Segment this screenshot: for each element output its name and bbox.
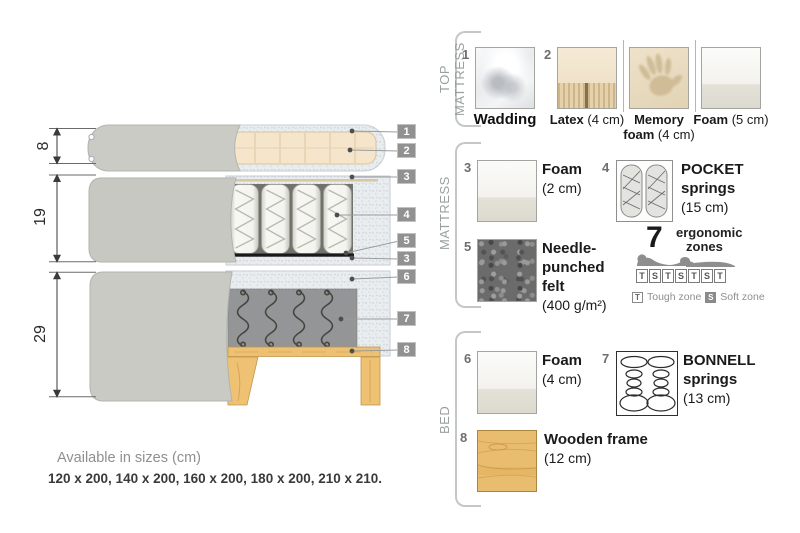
section-label-mattress: MATTRESS bbox=[437, 186, 452, 250]
lying-body-icon bbox=[634, 252, 738, 269]
bonnell-springs-label: BONNELL springs (13 cm) bbox=[683, 351, 756, 407]
divider-latex-memory bbox=[623, 40, 624, 112]
foam-4cm-label: Foam(4 cm) bbox=[542, 351, 582, 388]
item-number-bonnell: 7 bbox=[602, 351, 609, 366]
tag-1: 1 bbox=[397, 124, 416, 139]
zones-legend: T Tough zone S Soft zone bbox=[632, 291, 765, 303]
zone-box-6: S bbox=[701, 269, 713, 283]
wooden-frame-label: Wooden frame(12 cm) bbox=[544, 430, 674, 467]
foam-4cm-thumbnail bbox=[477, 351, 537, 414]
zone-boxes: T S T S T S T bbox=[636, 269, 726, 283]
item-number-wadding: 1 bbox=[462, 47, 469, 62]
bonnell-area bbox=[228, 289, 357, 347]
tough-zone-key: T bbox=[632, 292, 643, 303]
foam-2cm-thumbnail bbox=[477, 160, 537, 222]
section-label-bed: BED bbox=[437, 404, 452, 436]
dimension-label-bed: 29 bbox=[32, 323, 50, 345]
tag-6: 6 bbox=[397, 269, 416, 284]
tough-zone-label: Tough zone bbox=[647, 291, 701, 303]
pocket-springs-thumbnail bbox=[616, 160, 673, 222]
zones-count: 7 bbox=[646, 221, 663, 255]
foam-5cm-thumbnail bbox=[701, 47, 761, 109]
wood-grain-icon bbox=[478, 431, 536, 491]
dimension-label-mattress: 19 bbox=[32, 206, 50, 228]
tag-8: 8 bbox=[397, 342, 416, 357]
zone-box-7: T bbox=[714, 269, 726, 283]
needle-felt-label: Needle-punched felt(400 g/m²) bbox=[542, 239, 630, 314]
bonnell-springs-thumbnail bbox=[616, 351, 678, 416]
dimension-label-top-mattress: 8 bbox=[35, 135, 53, 157]
felt-layer bbox=[229, 254, 354, 257]
pocket-springs-icon bbox=[617, 161, 672, 221]
top-mattress-fabric bbox=[88, 125, 240, 171]
tag-3-top: 3 bbox=[397, 169, 416, 184]
soft-zone-key: S bbox=[705, 292, 716, 303]
latex-thumbnail bbox=[557, 47, 617, 109]
soft-zone-label: Soft zone bbox=[720, 291, 764, 303]
wadding-thumbnail bbox=[475, 47, 535, 109]
wadding-label: Wadding bbox=[463, 111, 547, 128]
tag-4: 4 bbox=[397, 207, 416, 222]
zone-box-1: T bbox=[636, 269, 648, 283]
tag-2: 2 bbox=[397, 143, 416, 158]
mattress-fabric bbox=[89, 178, 236, 262]
wooden-frame bbox=[226, 347, 380, 405]
foam-2cm-label: Foam(2 cm) bbox=[542, 160, 582, 197]
item-number-felt: 5 bbox=[464, 239, 471, 254]
zone-box-5: T bbox=[688, 269, 700, 283]
ergonomic-zones-block: 7 ergonomic zones T S T S T S T T Tough … bbox=[628, 219, 750, 305]
bed-fabric bbox=[90, 272, 232, 401]
top-mattress-section bbox=[88, 125, 385, 171]
sizes-title: Available in sizes (cm) bbox=[57, 450, 201, 466]
needle-felt-thumbnail bbox=[477, 239, 537, 302]
item-number-foam4: 6 bbox=[464, 351, 471, 366]
latex-slit bbox=[585, 83, 588, 108]
pocket-springs-label: POCKET springs (15 cm) bbox=[681, 160, 744, 216]
wooden-frame-thumbnail bbox=[477, 430, 537, 492]
item-number-foam2: 3 bbox=[464, 160, 471, 175]
zones-label-line1: ergonomic bbox=[676, 225, 742, 240]
tag-3-bottom: 3 bbox=[397, 251, 416, 266]
zone-box-3: T bbox=[662, 269, 674, 283]
infographic-canvas: 8 19 29 1 2 3 4 5 3 6 7 8 Available in s… bbox=[0, 0, 800, 533]
foam-5cm-label: Foam (5 cm) bbox=[689, 112, 773, 127]
bed-base-section bbox=[90, 271, 390, 405]
tag-7: 7 bbox=[397, 311, 416, 326]
item-number-pocket: 4 bbox=[602, 160, 609, 175]
tag-5: 5 bbox=[397, 233, 416, 248]
dimension-arrows bbox=[49, 129, 96, 397]
item-number-latex: 2 bbox=[544, 47, 551, 62]
sizes-list: 120 x 200, 140 x 200, 160 x 200, 180 x 2… bbox=[48, 471, 382, 486]
divider-memory-foam5 bbox=[695, 40, 696, 112]
hand-imprint-icon bbox=[630, 48, 688, 108]
zone-box-2: S bbox=[649, 269, 661, 283]
bonnell-springs-icon bbox=[617, 352, 677, 415]
memory-foam-thumbnail bbox=[629, 47, 689, 109]
item-number-wood: 8 bbox=[460, 430, 467, 445]
zone-box-4: S bbox=[675, 269, 687, 283]
